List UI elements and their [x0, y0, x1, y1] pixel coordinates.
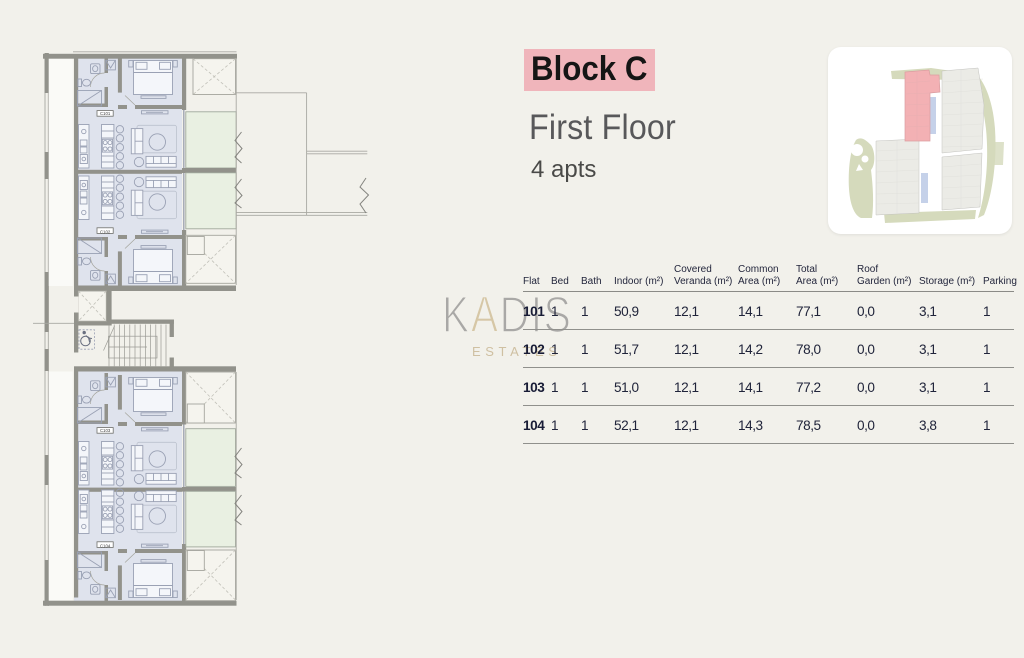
svg-text:C102: C102 [100, 230, 111, 235]
svg-text:C104: C104 [100, 544, 111, 549]
svg-text:C103: C103 [100, 428, 111, 433]
svg-text:C101: C101 [100, 111, 111, 116]
